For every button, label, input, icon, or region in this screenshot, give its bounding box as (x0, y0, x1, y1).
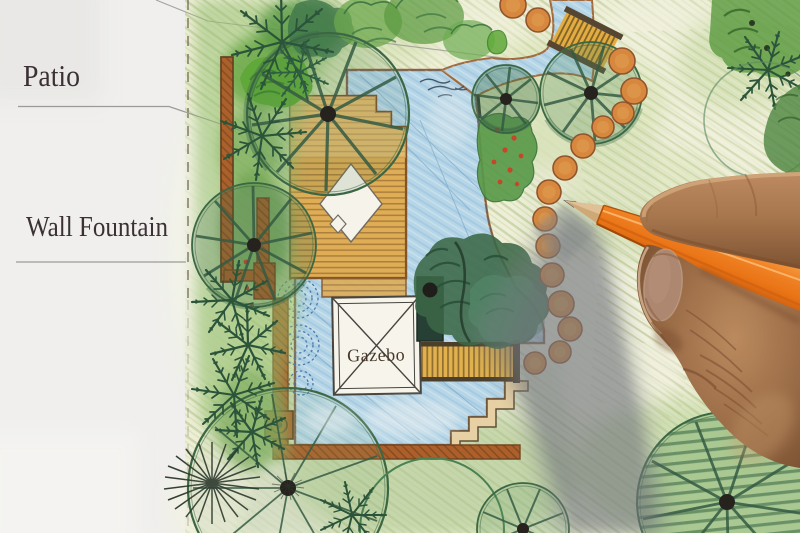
svg-text:Wall Fountain: Wall Fountain (26, 211, 168, 243)
svg-text:Patio: Patio (23, 58, 80, 93)
